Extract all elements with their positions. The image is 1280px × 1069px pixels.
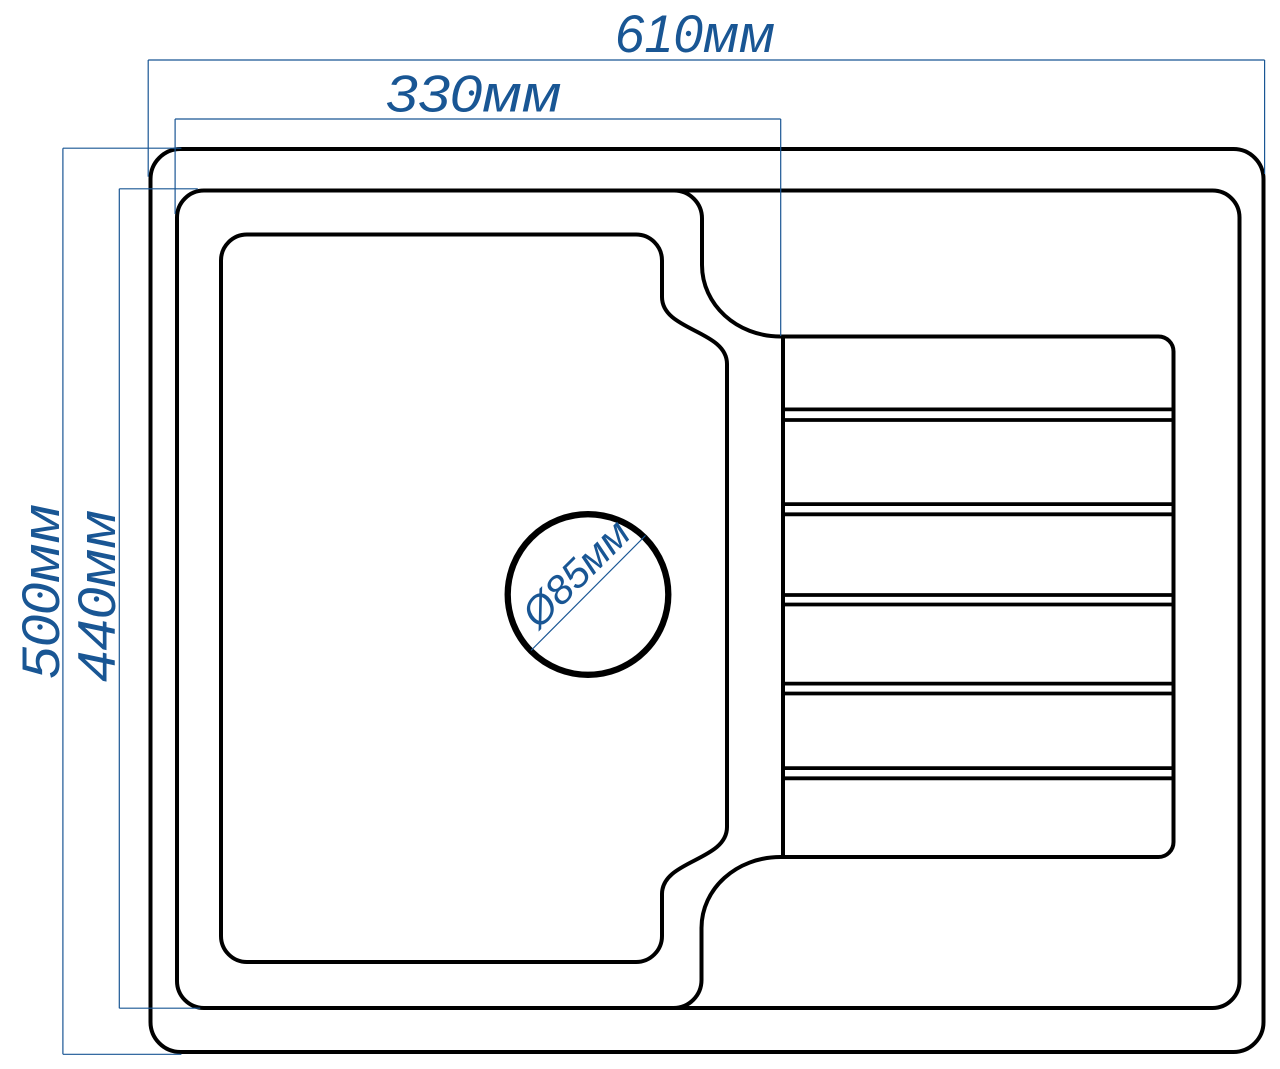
svg-text:440мм: 440мм <box>68 510 127 682</box>
svg-text:610мм: 610мм <box>615 5 775 64</box>
svg-text:500мм: 500мм <box>12 504 71 679</box>
